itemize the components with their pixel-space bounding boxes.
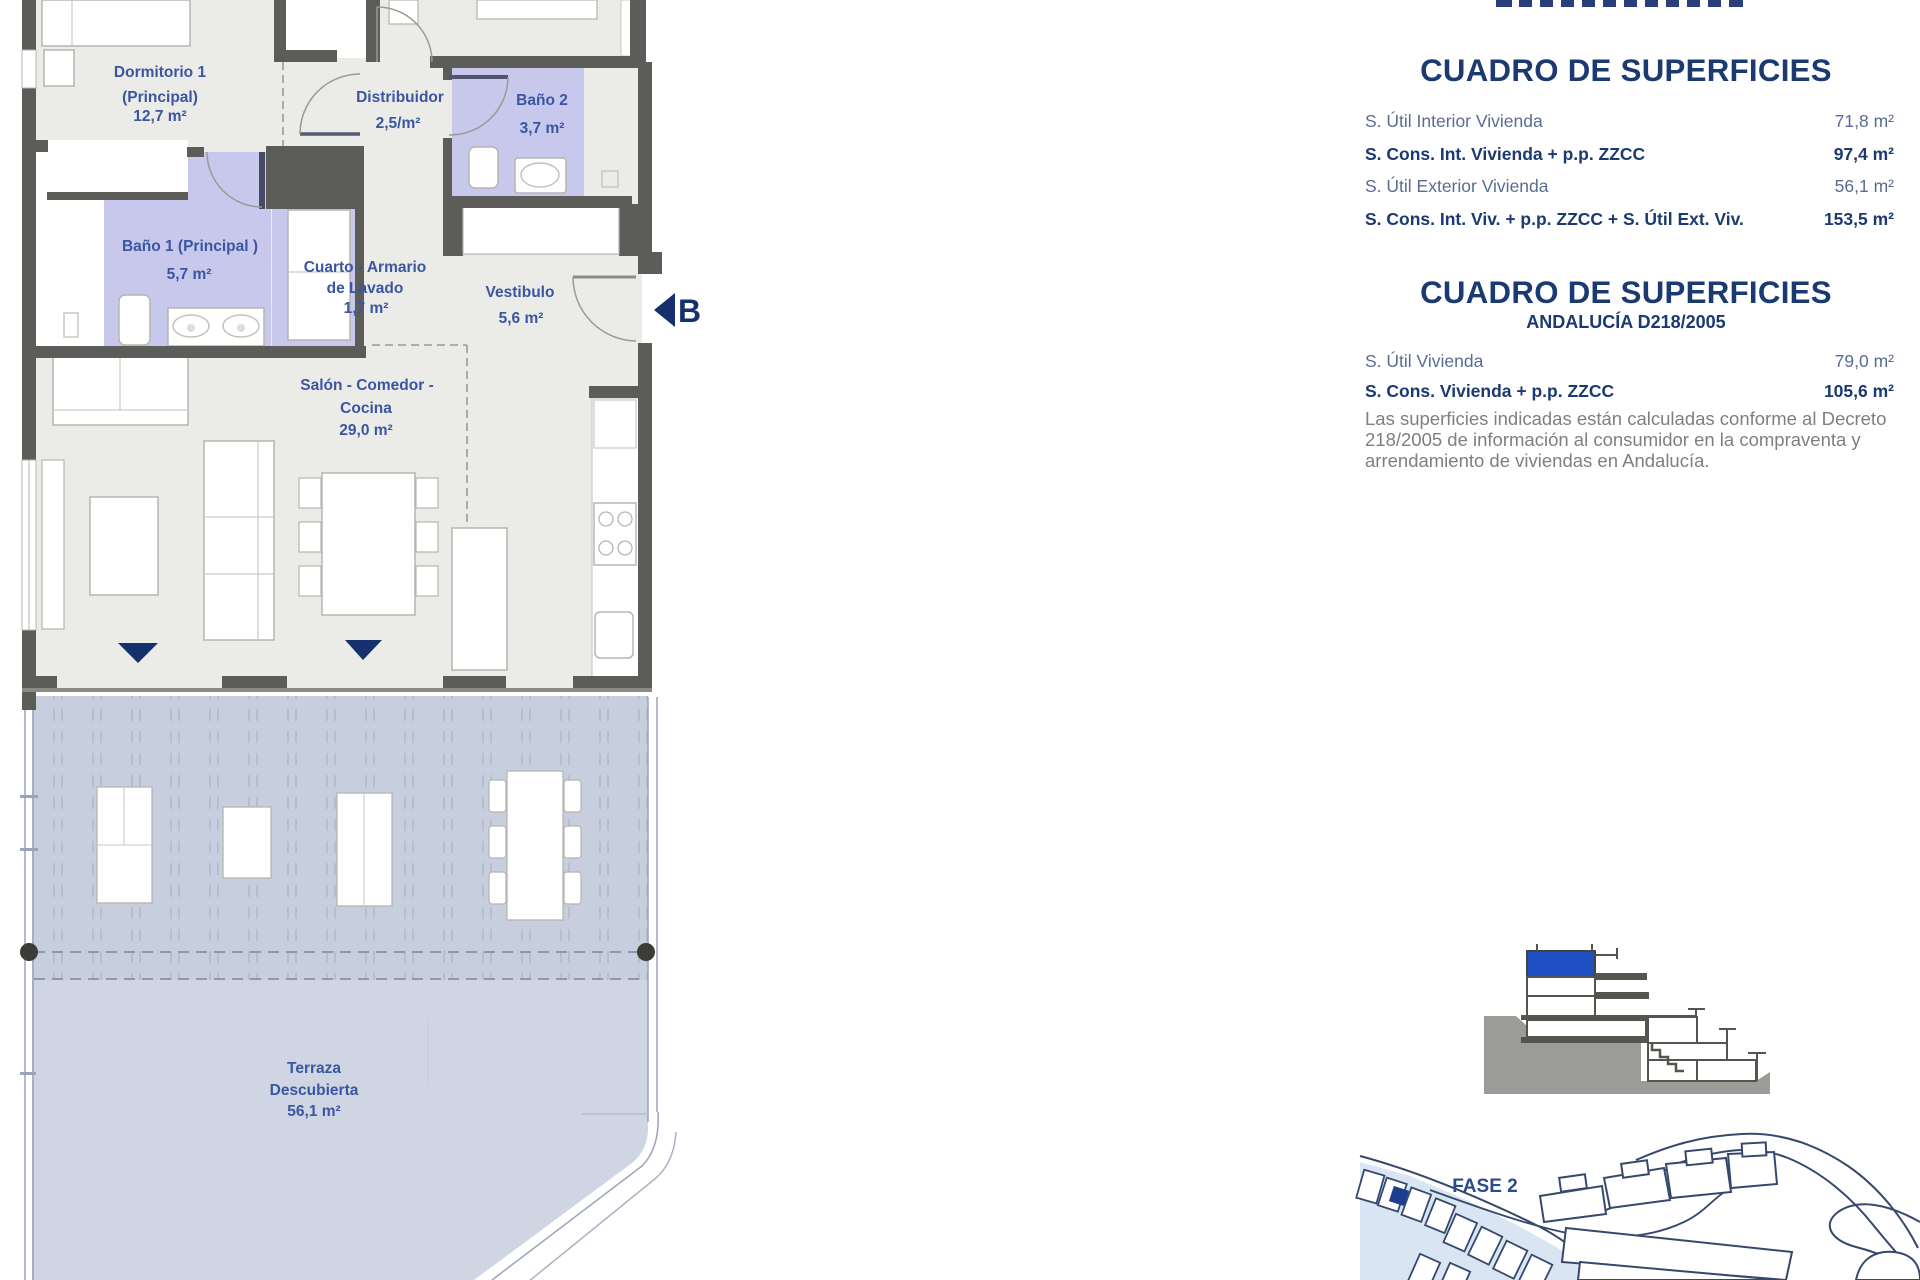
svg-text:56,1 m²: 56,1 m² [287, 1103, 340, 1120]
svg-text:Cuarto - Armario: Cuarto - Armario [304, 259, 427, 276]
svg-text:29,0 m²: 29,0 m² [339, 422, 392, 439]
svg-text:Vestibulo: Vestibulo [486, 284, 555, 301]
svg-text:71,8 m²: 71,8 m² [1835, 111, 1894, 131]
svg-text:Dormitorio 1: Dormitorio 1 [114, 64, 207, 81]
svg-text:S. Útil Vivienda: S. Útil Vivienda [1365, 350, 1484, 371]
svg-text:S. Útil Interior Vivienda: S. Útil Interior Vivienda [1365, 110, 1543, 131]
svg-text:S. Cons. Int. Vivienda + p.p.: S. Cons. Int. Vivienda + p.p. ZZCC [1365, 144, 1646, 164]
svg-text:S. Cons. Vivienda + p.p. ZZCC: S. Cons. Vivienda + p.p. ZZCC [1365, 381, 1614, 401]
svg-text:Baño 2: Baño 2 [516, 92, 568, 109]
svg-text:Baño 1 (Principal ): Baño 1 (Principal ) [122, 238, 258, 255]
svg-text:97,4 m²: 97,4 m² [1834, 144, 1894, 164]
svg-text:(Principal): (Principal) [122, 89, 198, 106]
svg-text:de Lavado: de Lavado [327, 280, 404, 297]
svg-text:arrendamiento de viviendas en: arrendamiento de viviendas en Andalucía. [1365, 450, 1710, 471]
svg-text:CUADRO DE SUPERFICIES: CUADRO DE SUPERFICIES [1420, 53, 1832, 88]
svg-text:3,7 m²: 3,7 m² [520, 120, 565, 137]
svg-text:B: B [678, 293, 701, 329]
svg-text:1,7 m²: 1,7 m² [344, 300, 389, 317]
svg-text:5,7 m²: 5,7 m² [167, 266, 212, 283]
svg-text:Distribuidor: Distribuidor [356, 89, 444, 106]
svg-text:218/2005 de información al con: 218/2005 de información al consumidor en… [1365, 429, 1861, 450]
svg-text:Cocina: Cocina [340, 400, 392, 417]
svg-text:153,5 m²: 153,5 m² [1824, 209, 1894, 229]
svg-text:Las superficies indicadas está: Las superficies indicadas están calculad… [1365, 408, 1886, 429]
svg-text:ANDALUCÍA D218/2005: ANDALUCÍA D218/2005 [1526, 311, 1725, 332]
svg-text:2,5/m²: 2,5/m² [376, 115, 421, 132]
svg-text:12,7 m²: 12,7 m² [133, 108, 186, 125]
svg-text:S. Cons. Int. Viv. + p.p. ZZCC: S. Cons. Int. Viv. + p.p. ZZCC + S. Útil… [1365, 208, 1744, 229]
svg-text:5,6 m²: 5,6 m² [499, 310, 544, 327]
svg-text:S. Útil Exterior Vivienda: S. Útil Exterior Vivienda [1365, 175, 1549, 196]
svg-text:FASE 2: FASE 2 [1452, 1176, 1517, 1197]
svg-text:Terraza: Terraza [287, 1060, 341, 1077]
svg-text:56,1 m²: 56,1 m² [1835, 176, 1894, 196]
svg-text:Salón - Comedor -: Salón - Comedor - [300, 377, 433, 394]
svg-text:CUADRO DE SUPERFICIES: CUADRO DE SUPERFICIES [1420, 275, 1832, 310]
svg-text:79,0 m²: 79,0 m² [1835, 351, 1894, 371]
svg-text:Descubierta: Descubierta [270, 1082, 359, 1099]
svg-text:105,6 m²: 105,6 m² [1824, 381, 1894, 401]
